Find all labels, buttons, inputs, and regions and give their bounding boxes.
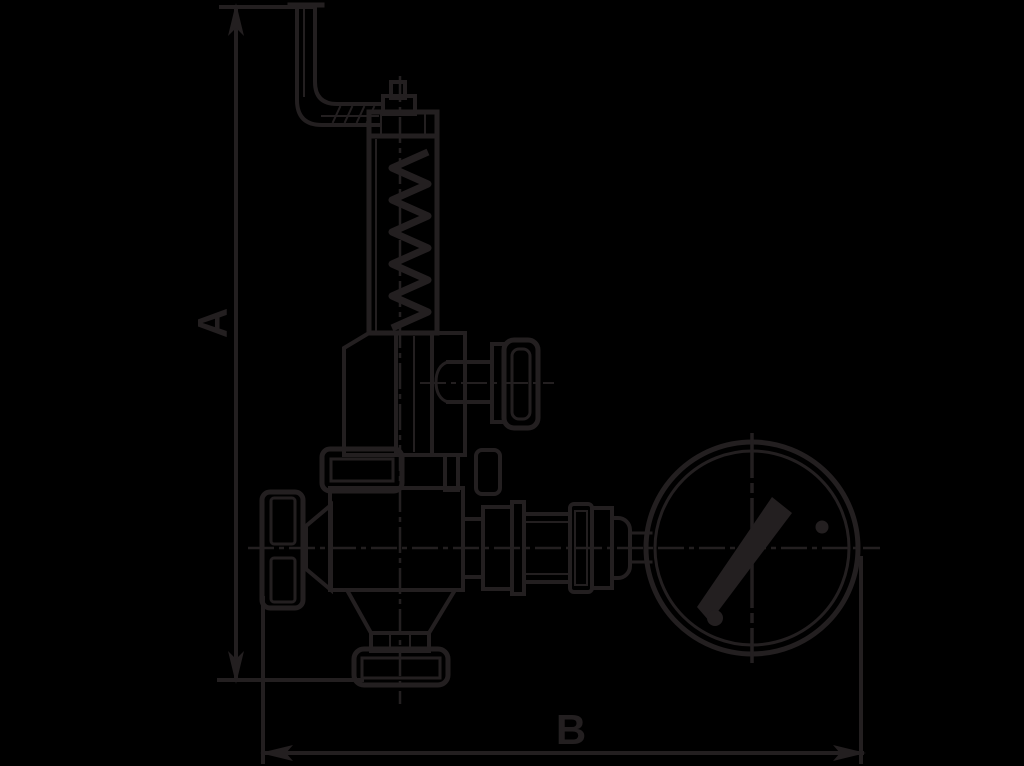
spring-housing (369, 136, 437, 333)
vent-pipe-outer-wall (297, 6, 380, 125)
spring-coil (392, 152, 428, 328)
bonnet-side-block (476, 450, 500, 494)
handwheel-opening-top (271, 498, 295, 544)
valve-assembly (262, 5, 651, 685)
dim-b-label: B (556, 706, 586, 753)
drawing-stage: A B (0, 0, 1024, 766)
gauge-needle (697, 497, 792, 622)
gauge-screw-dot-right (816, 521, 829, 534)
upper-body (344, 333, 465, 455)
vent-pipe (290, 5, 380, 125)
bonnet-post (445, 455, 458, 490)
valve-dimension-drawing: A B (0, 0, 1024, 766)
valve-body (330, 488, 463, 651)
bonnet-flange-inner (331, 459, 393, 481)
handwheel-rim (262, 492, 303, 608)
vent-pipe-inner-wall (315, 6, 380, 104)
gauge-screw-dot-left (707, 610, 723, 626)
adjusting-cap (369, 82, 437, 136)
dim-a-label: A (189, 308, 236, 338)
handwheel (262, 492, 331, 608)
valve-body-block (330, 488, 463, 590)
handwheel-opening-bottom (271, 558, 295, 602)
upper-body-outline (344, 333, 465, 455)
